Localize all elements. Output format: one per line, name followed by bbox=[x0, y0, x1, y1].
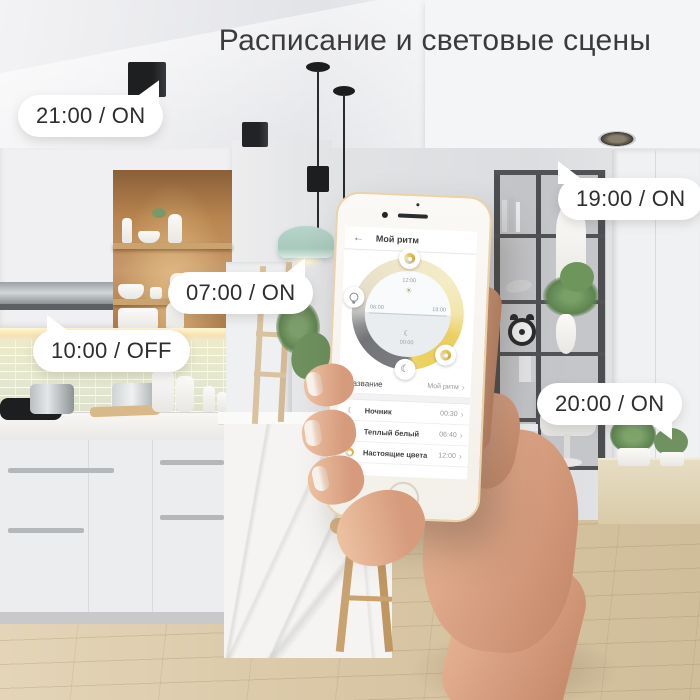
cabinet-seam bbox=[88, 440, 89, 618]
cup bbox=[150, 287, 162, 299]
page-title: Расписание и световые сцены bbox=[200, 24, 670, 58]
chevron-right-icon: › bbox=[462, 382, 465, 392]
toe-kick bbox=[0, 612, 232, 624]
plant-leaves bbox=[560, 262, 594, 292]
bowl bbox=[118, 284, 144, 299]
dial-bottom-time: 00:00 bbox=[364, 338, 450, 348]
scene-label: Теплый белый bbox=[364, 427, 420, 438]
callout-text: 20:00 / ON bbox=[555, 391, 664, 416]
callout-text: 19:00 / ON bbox=[576, 186, 685, 211]
callout-text: 21:00 / ON bbox=[36, 103, 145, 128]
table-lamp-stem bbox=[564, 434, 570, 460]
range-hood bbox=[0, 282, 113, 306]
drawer-handle bbox=[8, 468, 114, 473]
bottle bbox=[203, 386, 215, 412]
shelf-board bbox=[494, 170, 605, 175]
color-wheel-icon bbox=[404, 253, 415, 264]
moon-icon: ☾ bbox=[400, 364, 409, 374]
color-wheel-icon bbox=[440, 349, 451, 360]
hood-slot bbox=[0, 304, 113, 310]
drawer-handle bbox=[160, 515, 224, 520]
schedule-callout-1000: 10:00 / OFF bbox=[33, 330, 190, 372]
niche-shelf-board bbox=[113, 243, 232, 249]
canister bbox=[152, 370, 174, 412]
greenery-sprig bbox=[152, 208, 166, 218]
plant-pot bbox=[660, 452, 684, 466]
plant-vase bbox=[556, 314, 576, 354]
book-stack bbox=[519, 356, 535, 382]
callout-text: 07:00 / ON bbox=[186, 280, 295, 305]
dial-left-time: 06:00 bbox=[370, 304, 384, 311]
chevron-right-icon: › bbox=[459, 451, 462, 461]
right-counter bbox=[598, 458, 700, 524]
schedule-callout-1900: 19:00 / ON bbox=[558, 178, 700, 220]
pendant-glow bbox=[288, 256, 324, 268]
name-value: Мой ритм bbox=[427, 383, 459, 391]
schedule-callout-0700: 07:00 / ON bbox=[168, 272, 313, 314]
clock-bell bbox=[526, 314, 534, 320]
sun-icon: ☀ bbox=[366, 284, 452, 297]
shelf-board bbox=[494, 352, 605, 356]
teal-pendant-lamp bbox=[278, 226, 334, 258]
scene-time: 00:30 bbox=[440, 410, 458, 418]
scene-button-evening[interactable] bbox=[435, 344, 457, 366]
chevron-right-icon: › bbox=[460, 409, 463, 419]
earpiece-speaker bbox=[398, 213, 428, 218]
canister bbox=[176, 376, 194, 412]
dishes bbox=[118, 308, 158, 330]
bulb-icon bbox=[349, 292, 358, 301]
schedule-callout-2100: 21:00 / ON bbox=[18, 95, 163, 137]
plant-pot bbox=[618, 448, 650, 466]
vase bbox=[122, 218, 132, 243]
pendant-cord bbox=[343, 94, 345, 200]
callout-text: 10:00 / OFF bbox=[51, 338, 172, 363]
app-title: Мой ритм bbox=[376, 234, 420, 246]
clock-bell bbox=[510, 314, 518, 320]
recessed-light bbox=[598, 131, 636, 147]
shelf-board bbox=[494, 234, 605, 238]
books bbox=[509, 198, 514, 232]
dial-right-time: 18:00 bbox=[432, 307, 446, 314]
scene-label: Настоящие цвета bbox=[363, 448, 428, 460]
proximity-sensor-dot bbox=[416, 203, 419, 206]
rhythm-ring: 12:00 ☀ 06:00 18:00 ☾ 00:00 ☾ bbox=[350, 256, 467, 373]
front-camera bbox=[382, 212, 388, 218]
books bbox=[516, 202, 520, 232]
books bbox=[502, 200, 507, 232]
app-screen: ← Мой ритм 12:00 ☀ 06:00 18:00 ☾ 00:00 bbox=[335, 226, 477, 479]
chevron-right-icon: › bbox=[460, 430, 463, 440]
cabinet-seam bbox=[152, 440, 153, 618]
drawer-handle bbox=[8, 528, 84, 533]
scene-time: 06:40 bbox=[439, 431, 457, 439]
drawer-handle bbox=[160, 460, 224, 465]
scene-button-warm-white[interactable] bbox=[343, 286, 365, 308]
pendant-box bbox=[307, 166, 329, 192]
vase bbox=[168, 214, 182, 243]
alarm-clock bbox=[508, 318, 536, 346]
schedule-callout-2000: 20:00 / ON bbox=[537, 383, 682, 425]
scene-label: Ночник bbox=[365, 406, 392, 416]
promo-scene: ← Мой ритм 12:00 ☀ 06:00 18:00 ☾ 00:00 bbox=[0, 0, 700, 700]
scene-button-true-colors[interactable] bbox=[399, 248, 421, 270]
pendant-cord bbox=[317, 192, 319, 228]
pendant-cord bbox=[317, 70, 319, 168]
back-arrow-icon[interactable]: ← bbox=[353, 232, 364, 244]
rhythm-dial: 12:00 ☀ 06:00 18:00 ☾ 00:00 ☾ bbox=[339, 249, 476, 378]
ceiling-spot-box bbox=[242, 122, 268, 147]
steel-pot bbox=[30, 384, 74, 414]
scene-time: 12:00 bbox=[438, 452, 456, 460]
